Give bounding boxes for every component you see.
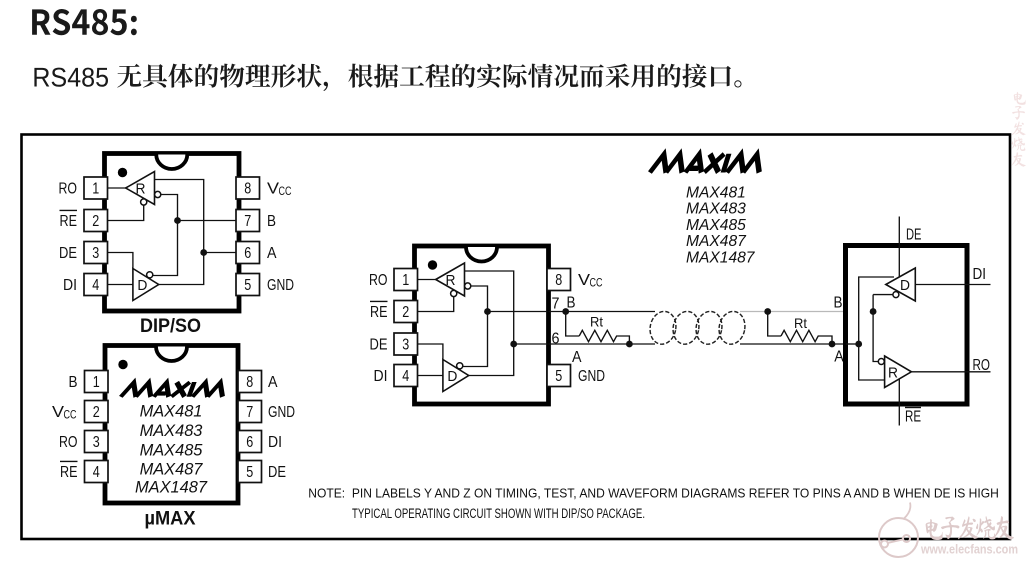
svg-text:V: V — [267, 181, 279, 198]
svg-text:MAX483: MAX483 — [140, 422, 203, 440]
svg-text:1: 1 — [93, 374, 100, 391]
svg-text:RE: RE — [60, 464, 78, 481]
svg-text:DE: DE — [59, 245, 77, 262]
svg-text:2: 2 — [93, 404, 100, 421]
svg-text:GND: GND — [268, 404, 295, 421]
svg-text:A: A — [572, 349, 582, 366]
svg-text:4: 4 — [92, 277, 99, 294]
svg-text:8: 8 — [246, 374, 253, 391]
svg-text:CC: CC — [64, 410, 77, 422]
svg-text:MAX481: MAX481 — [686, 184, 746, 201]
svg-text:DI: DI — [63, 277, 77, 294]
svg-text:V: V — [52, 404, 64, 421]
svg-text:3: 3 — [93, 434, 100, 451]
svg-text:RO: RO — [369, 272, 388, 289]
svg-text:A: A — [267, 245, 277, 262]
svg-text:MAX487: MAX487 — [140, 461, 204, 479]
svg-text:RO: RO — [973, 357, 991, 374]
svg-text:RO: RO — [59, 181, 78, 198]
svg-text:GND: GND — [578, 368, 605, 385]
svg-text:1: 1 — [92, 181, 99, 198]
svg-text:www.elecfans.com: www.elecfans.com — [920, 543, 1018, 557]
svg-text:4: 4 — [402, 368, 409, 385]
svg-text:B: B — [834, 295, 843, 312]
svg-text:RE: RE — [905, 409, 921, 426]
svg-text:7: 7 — [552, 296, 560, 313]
svg-text:GND: GND — [267, 277, 294, 294]
svg-text:CC: CC — [590, 278, 603, 290]
svg-text:NOTE: PIN LABELS Y AND Z ON T: NOTE: PIN LABELS Y AND Z ON TIMING, TEST… — [308, 486, 999, 501]
svg-text:MAX1487: MAX1487 — [686, 250, 756, 267]
svg-text:6: 6 — [552, 331, 560, 348]
svg-text:DI: DI — [268, 434, 282, 451]
svg-text:Rt: Rt — [794, 315, 807, 331]
svg-text:A: A — [268, 374, 278, 391]
svg-text:A: A — [834, 349, 844, 366]
svg-text:MAX481: MAX481 — [140, 402, 203, 420]
svg-text:MAX483: MAX483 — [686, 201, 746, 218]
svg-text:D: D — [447, 368, 457, 385]
svg-text:8: 8 — [244, 181, 251, 198]
svg-text:6: 6 — [246, 434, 253, 451]
svg-text:B: B — [69, 374, 78, 391]
svg-text:DIP/SO: DIP/SO — [140, 315, 201, 337]
svg-text:DE: DE — [906, 227, 922, 244]
svg-text:RO: RO — [59, 434, 78, 451]
svg-text:DI: DI — [374, 368, 388, 385]
svg-text:7: 7 — [246, 404, 253, 421]
svg-text:B: B — [267, 213, 276, 230]
svg-text:DE: DE — [268, 464, 286, 481]
svg-text:5: 5 — [244, 277, 251, 294]
svg-text:4: 4 — [93, 464, 100, 481]
svg-text:D: D — [900, 277, 910, 294]
svg-text:2: 2 — [402, 304, 409, 321]
svg-text:Rt: Rt — [590, 314, 603, 330]
svg-text:TYPICAL OPERATING CIRCUIT SHOW: TYPICAL OPERATING CIRCUIT SHOWN WITH DIP… — [352, 506, 645, 521]
svg-text:MAX485: MAX485 — [686, 217, 746, 234]
svg-text:MAX1487: MAX1487 — [135, 479, 208, 497]
svg-text:2: 2 — [92, 213, 99, 230]
svg-text:CC: CC — [279, 186, 292, 198]
svg-text:6: 6 — [244, 245, 251, 262]
svg-text:RE: RE — [370, 304, 388, 321]
svg-text:MAX487: MAX487 — [686, 233, 747, 250]
svg-text:RE: RE — [60, 213, 78, 230]
svg-text:µMAX: µMAX — [145, 508, 196, 530]
svg-text:R: R — [136, 181, 146, 198]
svg-text:DE: DE — [370, 337, 388, 354]
svg-text:R: R — [888, 365, 898, 382]
svg-text:D: D — [137, 277, 147, 294]
svg-text:V: V — [578, 272, 590, 289]
svg-text:5: 5 — [246, 464, 253, 481]
svg-text:7: 7 — [244, 213, 251, 230]
svg-text:R: R — [446, 272, 456, 289]
svg-text:1: 1 — [402, 272, 409, 289]
svg-text:3: 3 — [92, 245, 99, 262]
svg-text:3: 3 — [402, 337, 409, 354]
svg-text:DI: DI — [973, 266, 987, 283]
svg-text:MAX485: MAX485 — [140, 441, 204, 459]
svg-text:5: 5 — [555, 368, 562, 385]
svg-text:8: 8 — [555, 272, 562, 289]
